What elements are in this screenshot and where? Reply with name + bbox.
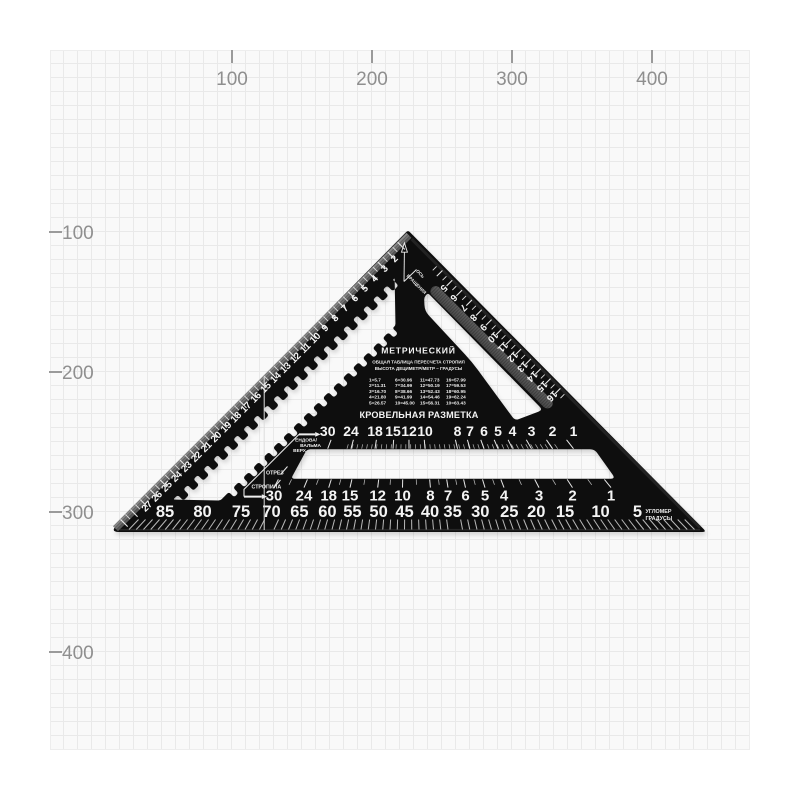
- svg-text:4: 4: [500, 487, 509, 504]
- svg-text:5: 5: [481, 487, 489, 504]
- svg-text:18: 18: [320, 487, 337, 504]
- svg-text:7: 7: [444, 487, 452, 504]
- svg-text:15=56.31: 15=56.31: [420, 400, 440, 405]
- svg-text:60: 60: [318, 503, 336, 521]
- svg-text:15: 15: [556, 503, 574, 521]
- svg-text:24: 24: [343, 423, 359, 439]
- svg-text:6: 6: [480, 423, 488, 439]
- svg-text:20: 20: [527, 503, 545, 521]
- svg-text:УГЛОМЕР: УГЛОМЕР: [646, 509, 672, 515]
- svg-text:ВАЛЬМА: ВАЛЬМА: [300, 443, 321, 449]
- svg-text:ГРАДУСЫ: ГРАДУСЫ: [646, 516, 673, 522]
- svg-text:2=11.31: 2=11.31: [369, 383, 386, 388]
- svg-text:12: 12: [369, 487, 386, 504]
- svg-text:6: 6: [461, 487, 469, 504]
- svg-text:4: 4: [509, 423, 517, 439]
- svg-text:5: 5: [494, 423, 502, 439]
- svg-text:ВЫСОТА ДЕЦИМЕТР/МЕТР – ГРАДУСЫ: ВЫСОТА ДЕЦИМЕТР/МЕТР – ГРАДУСЫ: [375, 366, 463, 371]
- svg-text:75: 75: [232, 503, 250, 521]
- svg-text:10: 10: [417, 423, 433, 439]
- svg-text:30: 30: [320, 423, 336, 439]
- svg-text:10: 10: [591, 503, 609, 521]
- svg-text:8=38.66: 8=38.66: [395, 389, 412, 394]
- svg-text:7=34.99: 7=34.99: [395, 383, 412, 388]
- svg-text:1: 1: [607, 487, 615, 504]
- svg-text:8: 8: [426, 487, 434, 504]
- svg-text:400: 400: [62, 643, 94, 664]
- svg-text:3=16.70: 3=16.70: [369, 389, 386, 394]
- svg-text:80: 80: [193, 503, 211, 521]
- svg-text:9=41.99: 9=41.99: [395, 395, 412, 400]
- svg-text:ОБЩАЯ ТАБЛИЦА ПЕРЕСЧЕТА СТРОПИ: ОБЩАЯ ТАБЛИЦА ПЕРЕСЧЕТА СТРОПИЛ: [372, 360, 465, 365]
- svg-text:МЕТРИЧЕСКИЙ: МЕТРИЧЕСКИЙ: [381, 345, 455, 356]
- svg-text:3: 3: [528, 423, 536, 439]
- svg-text:4=21.80: 4=21.80: [369, 395, 386, 400]
- svg-text:13=52.43: 13=52.43: [420, 389, 440, 394]
- svg-text:18=60.95: 18=60.95: [446, 389, 466, 394]
- svg-text:19=62.24: 19=62.24: [446, 395, 466, 400]
- svg-text:1=5.7: 1=5.7: [369, 378, 381, 383]
- svg-text:6=30.96: 6=30.96: [395, 378, 412, 383]
- svg-text:17=59.53: 17=59.53: [446, 383, 466, 388]
- svg-text:КРОВЕЛЬНАЯ РАЗМЕТКА: КРОВЕЛЬНАЯ РАЗМЕТКА: [360, 410, 479, 420]
- svg-text:65: 65: [290, 503, 308, 521]
- svg-text:200: 200: [356, 69, 388, 90]
- svg-text:200: 200: [62, 363, 94, 384]
- svg-text:3: 3: [535, 487, 543, 504]
- svg-text:16=57.99: 16=57.99: [446, 378, 466, 383]
- svg-text:11=47.73: 11=47.73: [420, 378, 440, 383]
- svg-text:18: 18: [367, 423, 383, 439]
- svg-text:100: 100: [62, 223, 94, 244]
- svg-text:10=63.43: 10=63.43: [446, 400, 466, 405]
- svg-text:70: 70: [262, 503, 280, 521]
- svg-text:300: 300: [62, 503, 94, 524]
- svg-text:15: 15: [342, 487, 359, 504]
- svg-text:400: 400: [636, 69, 668, 90]
- svg-text:300: 300: [496, 69, 528, 90]
- svg-text:35: 35: [443, 503, 461, 521]
- svg-text:2: 2: [568, 487, 576, 504]
- svg-text:2: 2: [549, 423, 557, 439]
- svg-text:10: 10: [394, 487, 411, 504]
- svg-text:50: 50: [369, 503, 387, 521]
- svg-text:СТРОПИЛА: СТРОПИЛА: [252, 484, 282, 490]
- svg-text:10=45.00: 10=45.00: [395, 400, 415, 405]
- svg-text:55: 55: [343, 503, 361, 521]
- svg-text:ЕНДОВА/: ЕНДОВА/: [295, 438, 318, 444]
- svg-text:45: 45: [395, 503, 413, 521]
- svg-text:100: 100: [216, 69, 248, 90]
- svg-text:8: 8: [454, 423, 462, 439]
- svg-text:ВЕРХ: ВЕРХ: [293, 448, 307, 454]
- svg-text:5: 5: [633, 503, 642, 521]
- svg-text:12=50.19: 12=50.19: [420, 383, 440, 388]
- svg-text:24: 24: [296, 487, 313, 504]
- svg-text:15: 15: [385, 423, 401, 439]
- svg-text:30: 30: [471, 503, 489, 521]
- svg-text:5=26.57: 5=26.57: [369, 400, 386, 405]
- svg-text:ОТРЕЗ: ОТРЕЗ: [266, 471, 284, 477]
- svg-text:40: 40: [421, 503, 439, 521]
- svg-text:12: 12: [401, 423, 417, 439]
- svg-text:7: 7: [466, 423, 474, 439]
- svg-text:85: 85: [156, 503, 174, 521]
- svg-text:25: 25: [500, 503, 518, 521]
- svg-text:1: 1: [570, 423, 578, 439]
- svg-text:14=54.46: 14=54.46: [420, 395, 440, 400]
